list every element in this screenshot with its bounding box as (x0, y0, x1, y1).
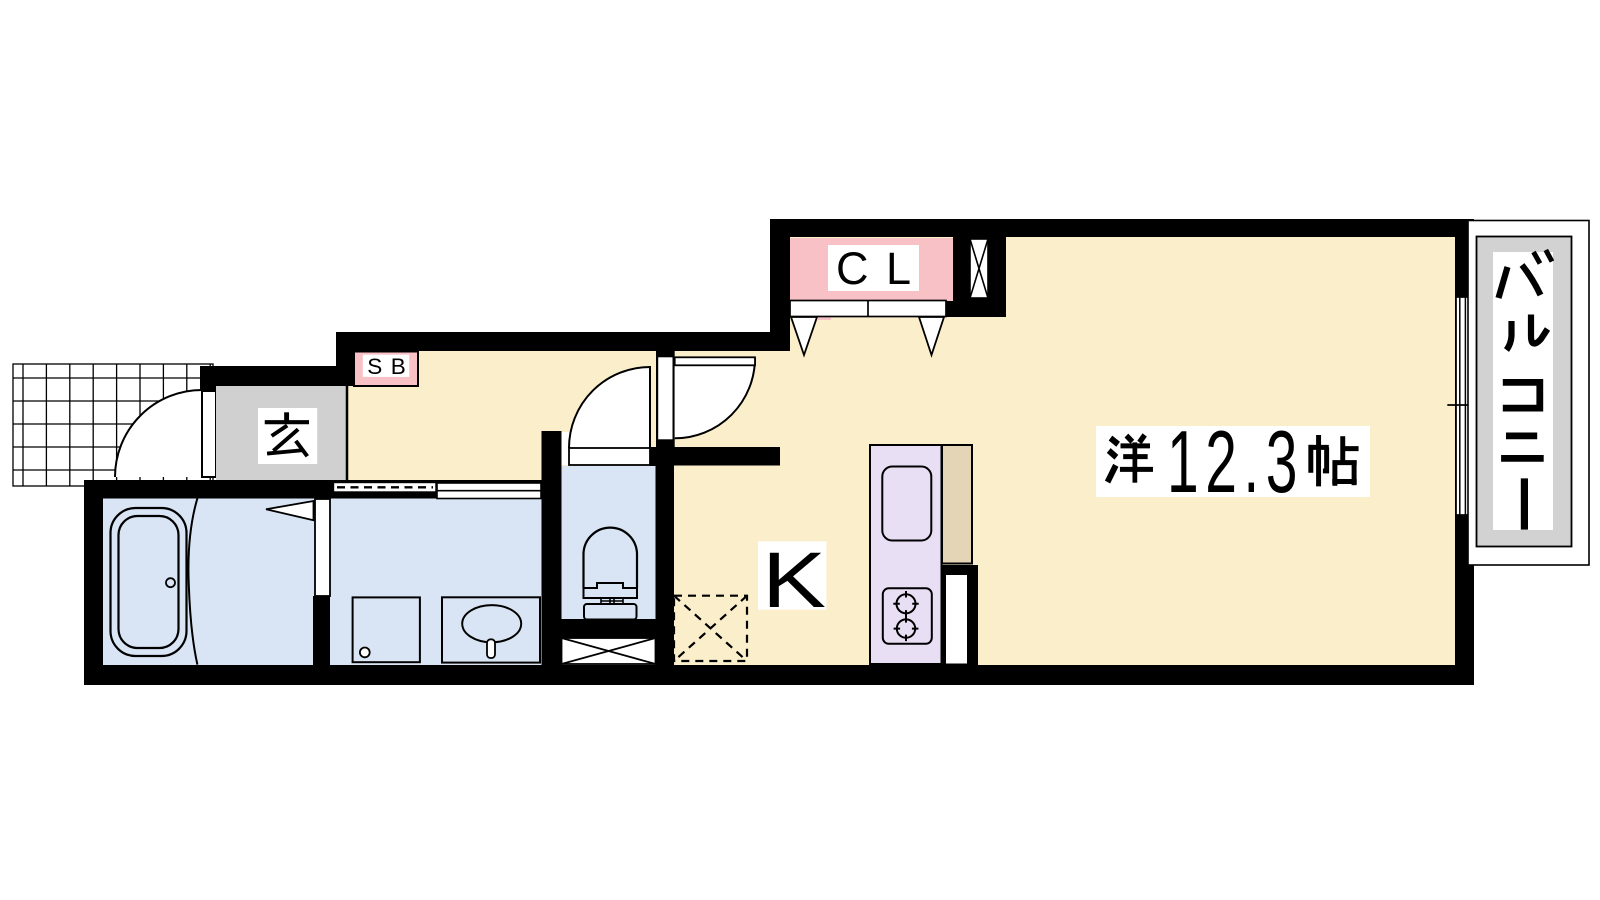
svg-text:S: S (367, 354, 382, 379)
svg-text:C: C (836, 243, 869, 294)
svg-text:K: K (762, 535, 826, 624)
svg-text:12.3: 12.3 (1167, 412, 1304, 511)
svg-text:L: L (886, 243, 911, 294)
svg-text:B: B (391, 354, 406, 379)
